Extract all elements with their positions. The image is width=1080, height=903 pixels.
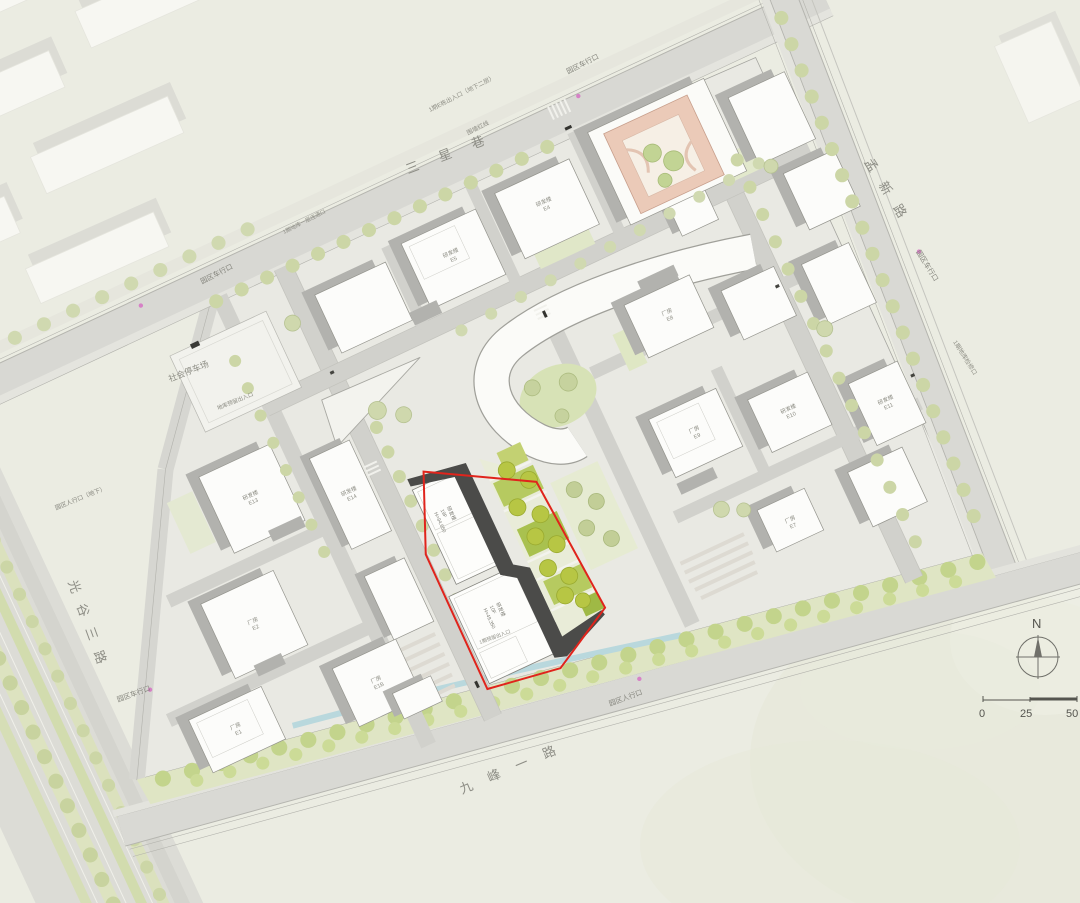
north-label: N bbox=[1032, 616, 1041, 631]
scale-tick-0: 0 bbox=[979, 708, 985, 720]
site-plan-drawing: 研发楼 19F H=94.650 研发楼 10F H=49.350 bbox=[0, 0, 1080, 903]
scale-tick-50: 50 bbox=[1066, 708, 1078, 720]
site-plan-canvas: 研发楼 19F H=94.650 研发楼 10F H=49.350 bbox=[0, 0, 1080, 903]
scale-tick-25: 25 bbox=[1020, 708, 1032, 720]
